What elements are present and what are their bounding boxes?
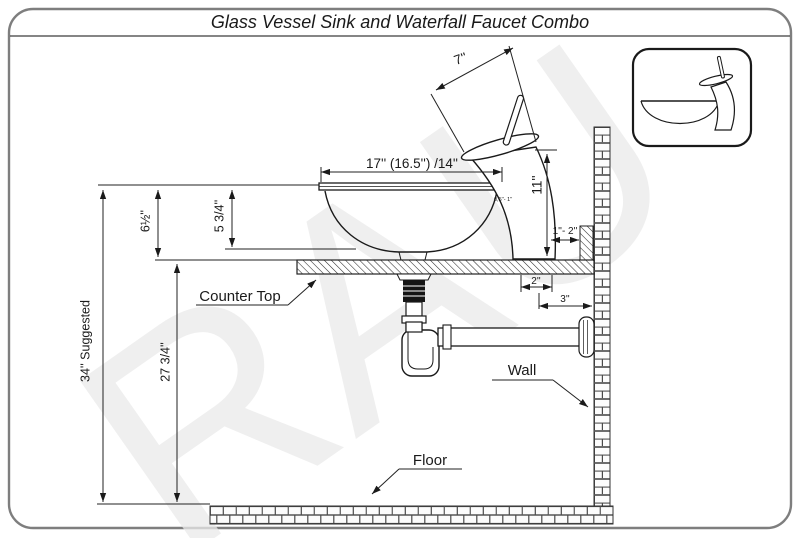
diagram-page: RAU Glass Vessel Sink and Waterfall Fauc…	[0, 0, 800, 538]
wall-label: Wall	[508, 362, 537, 379]
dim-spout-height: 11''	[530, 175, 545, 194]
dim-pipe-to-wall: 3''	[560, 294, 569, 305]
waste-pipe	[438, 328, 580, 346]
wall-brick-column	[594, 127, 610, 524]
diagram-title: Glass Vessel Sink and Waterfall Faucet C…	[211, 12, 589, 32]
wall-gap-strip	[580, 226, 593, 260]
drain-tailpiece	[406, 302, 422, 316]
dim-glass-thickness: 0,5''- 1''	[494, 197, 512, 203]
dim-bowl-height: 5 3/4''	[212, 200, 226, 233]
floor-brick-band	[210, 506, 613, 524]
dim-sink-width: 17'' (16.5'') /14''	[366, 156, 458, 171]
dim-rim-to-counter: 6½''	[138, 210, 152, 232]
trap-inlet-joint	[406, 322, 422, 332]
dim-drain-gap: 2''	[531, 276, 540, 287]
drain-flange	[397, 274, 431, 280]
dim-wall-gap: 1''- 2''	[553, 226, 578, 237]
counter-top-label: Counter Top	[199, 288, 280, 305]
product-inset	[633, 49, 751, 146]
pipe-joint-collar	[443, 325, 451, 349]
dim-suggested-height: 34'' Suggested	[78, 300, 92, 382]
installation-diagram: RAU Glass Vessel Sink and Waterfall Fauc…	[0, 0, 800, 538]
wall-escutcheon	[579, 317, 594, 357]
dim-counter-clearance: 27 3/4''	[158, 342, 172, 382]
floor-label: Floor	[413, 452, 447, 469]
